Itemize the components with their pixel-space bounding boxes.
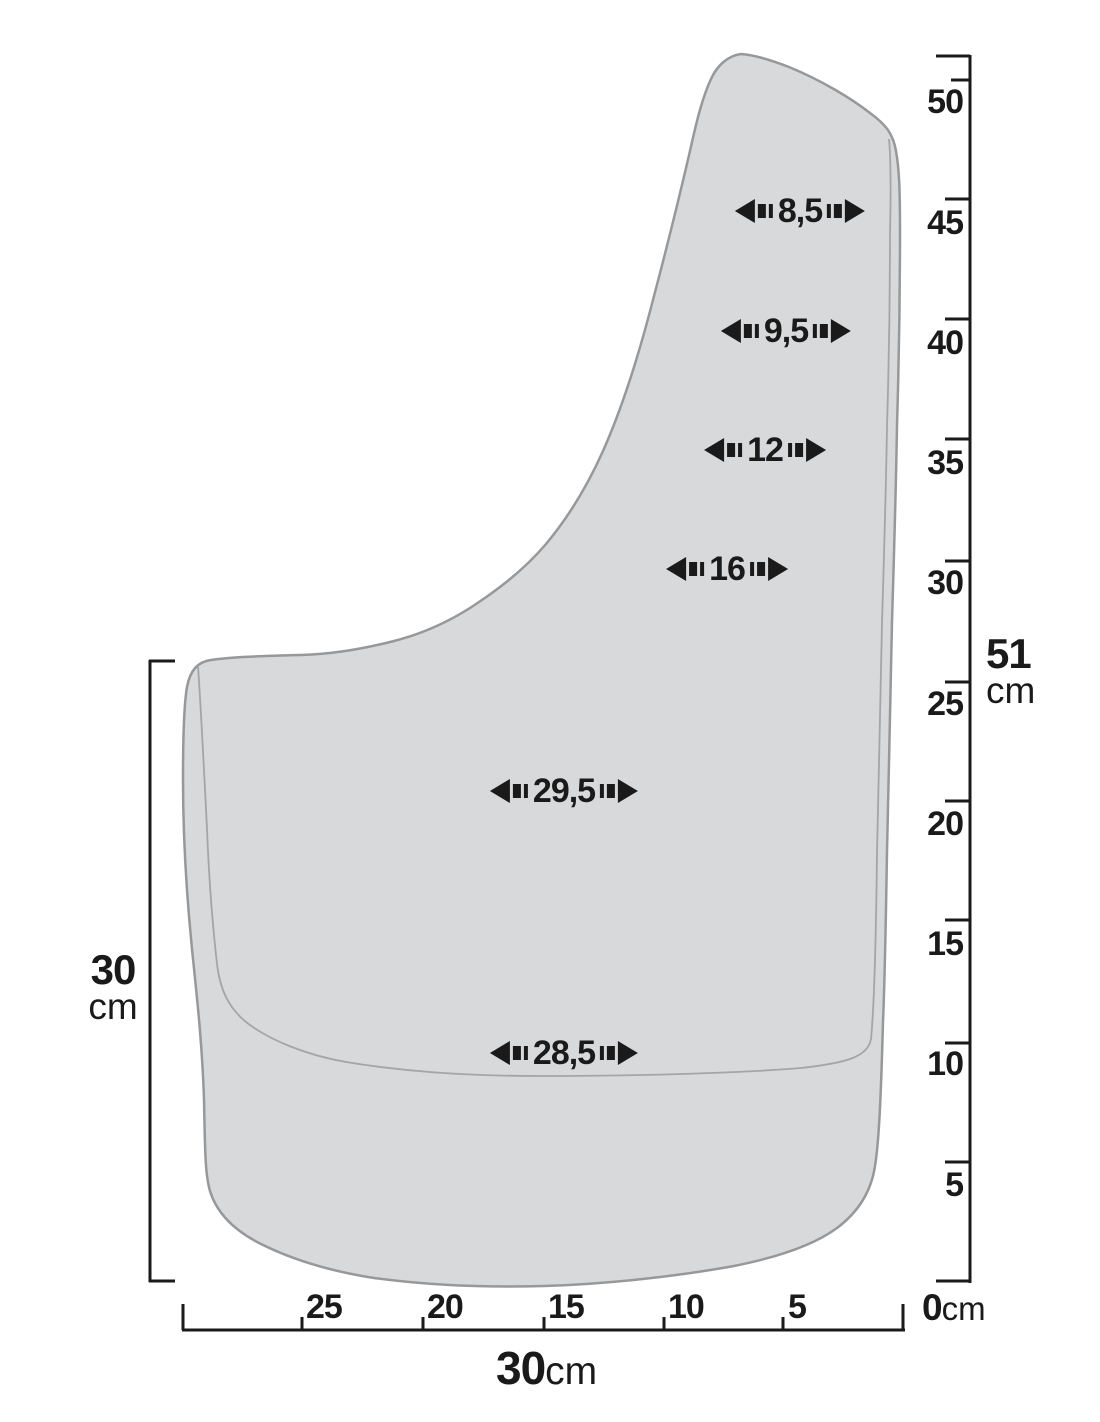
- ruler-origin-label: 0cm: [922, 1287, 986, 1329]
- arrowhead-left: [735, 199, 755, 223]
- total-width-label: 30cm: [496, 1341, 597, 1395]
- arrow-left-icon: [490, 1041, 528, 1065]
- arrow-dash: [755, 324, 759, 338]
- arrow-left-icon: [721, 319, 759, 343]
- arrow-dash: [513, 1046, 521, 1060]
- arrowhead-right: [618, 1041, 638, 1065]
- width-label-12: 12: [704, 433, 826, 467]
- arrow-dash: [600, 784, 604, 798]
- arrow-right-icon: [813, 319, 851, 343]
- width-label-9-5: 9,5: [721, 314, 851, 348]
- arrowhead-left: [666, 557, 686, 581]
- right-ruler-label-10: 10: [893, 1047, 963, 1081]
- arrow-left-icon: [735, 199, 773, 223]
- arrow-right-icon: [600, 779, 638, 803]
- arrow-dash: [600, 1046, 604, 1060]
- left-dimension-label: 30 cm: [80, 950, 146, 1024]
- arrow-dash: [727, 443, 735, 457]
- right-ruler-label-40: 40: [893, 326, 963, 360]
- left-dimension-unit: cm: [80, 990, 146, 1024]
- origin-value: 0: [922, 1287, 942, 1328]
- arrow-dash: [524, 1046, 528, 1060]
- width-label-29-5: 29,5: [490, 774, 638, 808]
- mudflap-outline: [183, 54, 900, 1287]
- arrowhead-left: [721, 319, 741, 343]
- total-height-label: 51 cm: [986, 634, 1035, 708]
- arrow-left-icon: [490, 779, 528, 803]
- arrowhead-right: [768, 557, 788, 581]
- arrow-dash: [769, 204, 773, 218]
- right-ruler-label-25: 25: [893, 687, 963, 721]
- total-height-unit: cm: [986, 674, 1035, 708]
- width-value: 9,5: [764, 314, 808, 348]
- bottom-ruler-label-10: 10: [668, 1290, 704, 1324]
- arrow-dash: [750, 562, 754, 576]
- arrow-right-icon: [788, 438, 826, 462]
- arrow-dash: [757, 562, 765, 576]
- width-value: 16: [709, 552, 745, 586]
- width-value: 12: [747, 433, 783, 467]
- arrow-right-icon: [750, 557, 788, 581]
- arrow-dash: [813, 324, 817, 338]
- arrow-dash: [689, 562, 697, 576]
- arrow-left-icon: [666, 557, 704, 581]
- right-ruler-label-15: 15: [893, 927, 963, 961]
- total-width-value: 30: [496, 1342, 545, 1394]
- arrowhead-right: [806, 438, 826, 462]
- bottom-ruler-label-15: 15: [548, 1290, 584, 1324]
- total-height-value: 51: [986, 634, 1035, 674]
- arrowhead-right: [618, 779, 638, 803]
- arrow-dash: [795, 443, 803, 457]
- right-ruler-label-50: 50: [893, 85, 963, 119]
- origin-unit: cm: [942, 1290, 986, 1327]
- arrowhead-left: [490, 779, 510, 803]
- arrow-dash: [834, 204, 842, 218]
- right-ruler-label-20: 20: [893, 807, 963, 841]
- width-label-16: 16: [666, 552, 788, 586]
- arrow-dash: [788, 443, 792, 457]
- arrow-dash: [827, 204, 831, 218]
- right-ruler-label-5: 5: [893, 1168, 963, 1202]
- width-label-28-5: 28,5: [490, 1036, 638, 1070]
- arrowhead-right: [845, 199, 865, 223]
- left-dimension-ticks: [149, 661, 175, 1281]
- arrow-dash: [607, 1046, 615, 1060]
- bottom-ruler-label-25: 25: [306, 1290, 342, 1324]
- arrow-dash: [700, 562, 704, 576]
- arrow-dash: [607, 784, 615, 798]
- arrowhead-left: [490, 1041, 510, 1065]
- arrow-dash: [738, 443, 742, 457]
- arrow-dash: [524, 784, 528, 798]
- arrow-right-icon: [827, 199, 865, 223]
- right-ruler-label-45: 45: [893, 206, 963, 240]
- arrowhead-left: [704, 438, 724, 462]
- bottom-ruler-label-20: 20: [427, 1290, 463, 1324]
- arrow-dash: [758, 204, 766, 218]
- right-ruler-label-35: 35: [893, 446, 963, 480]
- arrowhead-right: [831, 319, 851, 343]
- width-value: 8,5: [778, 194, 822, 228]
- width-label-8-5: 8,5: [735, 194, 865, 228]
- bottom-ruler-label-5: 5: [788, 1290, 806, 1324]
- total-width-unit: cm: [545, 1350, 597, 1393]
- right-ruler-label-30: 30: [893, 566, 963, 600]
- left-dimension-value: 30: [80, 950, 146, 990]
- arrow-dash: [744, 324, 752, 338]
- arrow-right-icon: [600, 1041, 638, 1065]
- arrow-left-icon: [704, 438, 742, 462]
- mudflap-dimension-diagram: 8,5 9,5 12 16 29,5 28,5 50 45 40 35 30 2…: [0, 0, 1100, 1422]
- arrow-dash: [820, 324, 828, 338]
- width-value: 29,5: [533, 774, 595, 808]
- width-value: 28,5: [533, 1036, 595, 1070]
- arrow-dash: [513, 784, 521, 798]
